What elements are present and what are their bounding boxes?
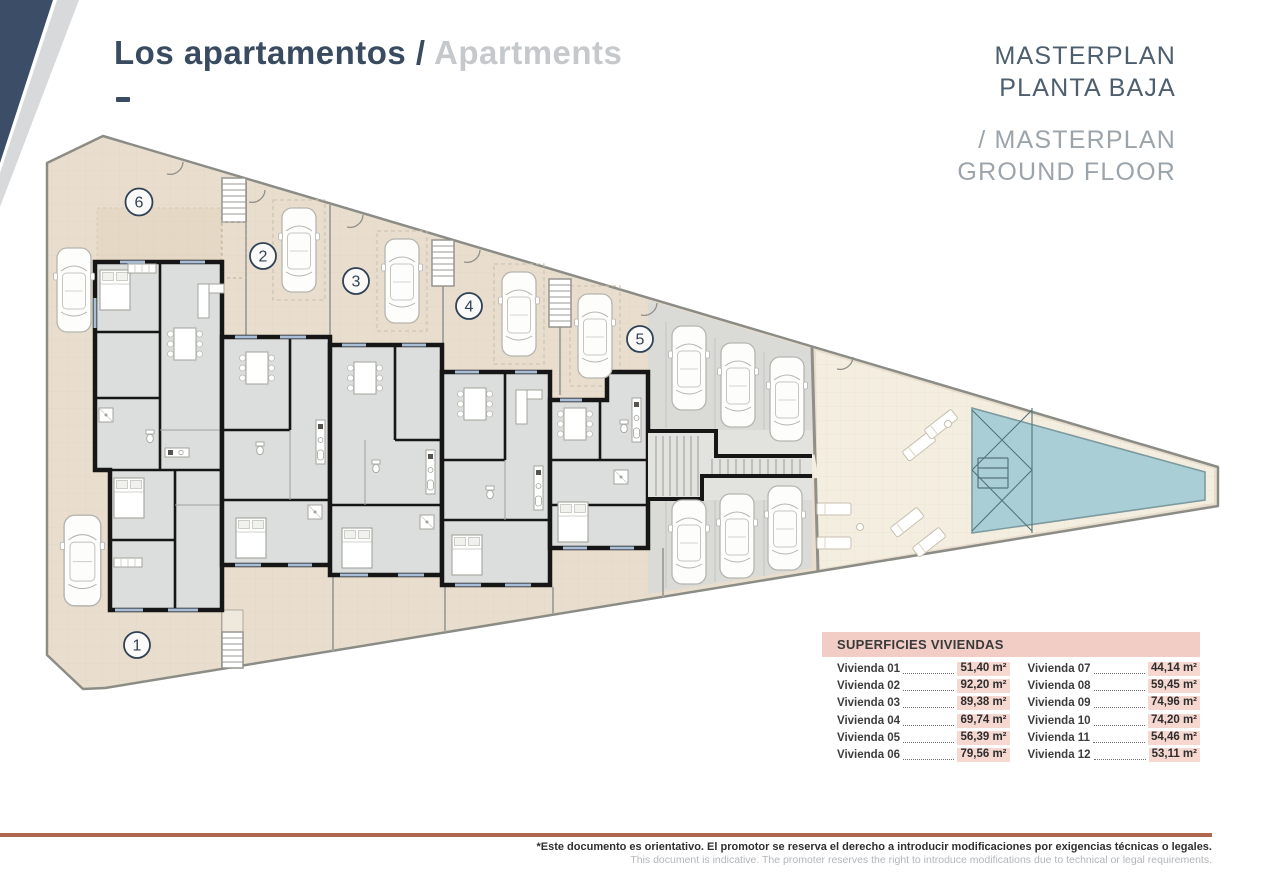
dotted-leader — [903, 673, 954, 674]
car-icon — [382, 239, 423, 323]
table-row: Vivienda 0292,20 m² — [837, 679, 1010, 693]
svg-text:5: 5 — [636, 332, 645, 349]
dotted-leader — [903, 742, 954, 743]
unit-number-4: 4 — [456, 293, 482, 319]
svg-text:3: 3 — [352, 274, 361, 291]
table-row: Vivienda 0679,56 m² — [837, 748, 1010, 762]
car-icon — [718, 343, 759, 427]
areas-table-col1: Vivienda 0151,40 m² Vivienda 0292,20 m² … — [837, 662, 1010, 765]
areas-table-title: SUPERFICIES VIVIENDAS — [822, 632, 1200, 657]
sun-lounger-icon — [817, 537, 851, 549]
dotted-leader — [1094, 725, 1145, 726]
apartment-block-5 — [550, 372, 648, 548]
sun-lounger-icon — [817, 503, 851, 515]
apartment-block-3 — [330, 345, 442, 575]
table-row: Vivienda 0469,74 m² — [837, 714, 1010, 728]
disclaimer-es: *Este documento es orientativo. El promo… — [536, 841, 1212, 854]
apartment-block-2 — [222, 337, 330, 565]
car-icon — [669, 326, 710, 410]
dotted-leader — [903, 759, 954, 760]
footer-rule — [0, 833, 1212, 837]
dotted-leader — [1094, 759, 1146, 760]
dotted-leader — [1094, 707, 1145, 708]
table-row: Vivienda 1253,11 m² — [1028, 748, 1201, 762]
table-row: Vivienda 1154,46 m² — [1028, 731, 1201, 745]
patio-unit6 — [97, 208, 221, 261]
dotted-leader — [1094, 690, 1145, 691]
unit-number-1: 1 — [124, 632, 150, 658]
car-icon — [669, 500, 710, 584]
dotted-leader — [903, 690, 954, 691]
svg-text:6: 6 — [135, 195, 144, 212]
svg-text:1: 1 — [133, 638, 142, 655]
table-row: Vivienda 0151,40 m² — [837, 662, 1010, 676]
svg-text:4: 4 — [465, 299, 474, 316]
car-icon — [279, 208, 320, 292]
table-row: Vivienda 0389,38 m² — [837, 696, 1010, 710]
disclaimer-en: This document is indicative. The promote… — [536, 854, 1212, 867]
car-icon — [765, 486, 806, 570]
car-icon — [717, 494, 758, 578]
table-row: Vivienda 0744,14 m² — [1028, 662, 1201, 676]
footer-disclaimer: *Este documento es orientativo. El promo… — [536, 841, 1212, 867]
areas-table-col2: Vivienda 0744,14 m² Vivienda 0859,45 m² … — [1028, 662, 1201, 765]
unit-number-2: 2 — [250, 243, 276, 269]
dotted-leader — [1094, 673, 1145, 674]
table-row: Vivienda 0859,45 m² — [1028, 679, 1201, 693]
unit-number-6: 6 — [126, 189, 153, 216]
dotted-leader — [903, 707, 954, 708]
areas-table: SUPERFICIES VIVIENDAS Vivienda 0151,40 m… — [822, 632, 1200, 765]
car-icon — [54, 248, 95, 332]
svg-text:2: 2 — [259, 249, 268, 266]
dotted-leader — [1093, 742, 1145, 743]
unit-number-5: 5 — [627, 326, 653, 352]
car-icon — [60, 515, 104, 606]
car-icon — [499, 272, 540, 356]
unit-number-3: 3 — [343, 268, 369, 294]
table-row: Vivienda 0974,96 m² — [1028, 696, 1201, 710]
table-row: Vivienda 0556,39 m² — [837, 731, 1010, 745]
table-row: Vivienda 1074,20 m² — [1028, 714, 1201, 728]
car-icon — [767, 357, 808, 441]
dotted-leader — [903, 725, 954, 726]
apartment-block-4 — [442, 372, 550, 585]
car-icon — [575, 294, 616, 378]
apartment-block-1 — [95, 262, 224, 610]
